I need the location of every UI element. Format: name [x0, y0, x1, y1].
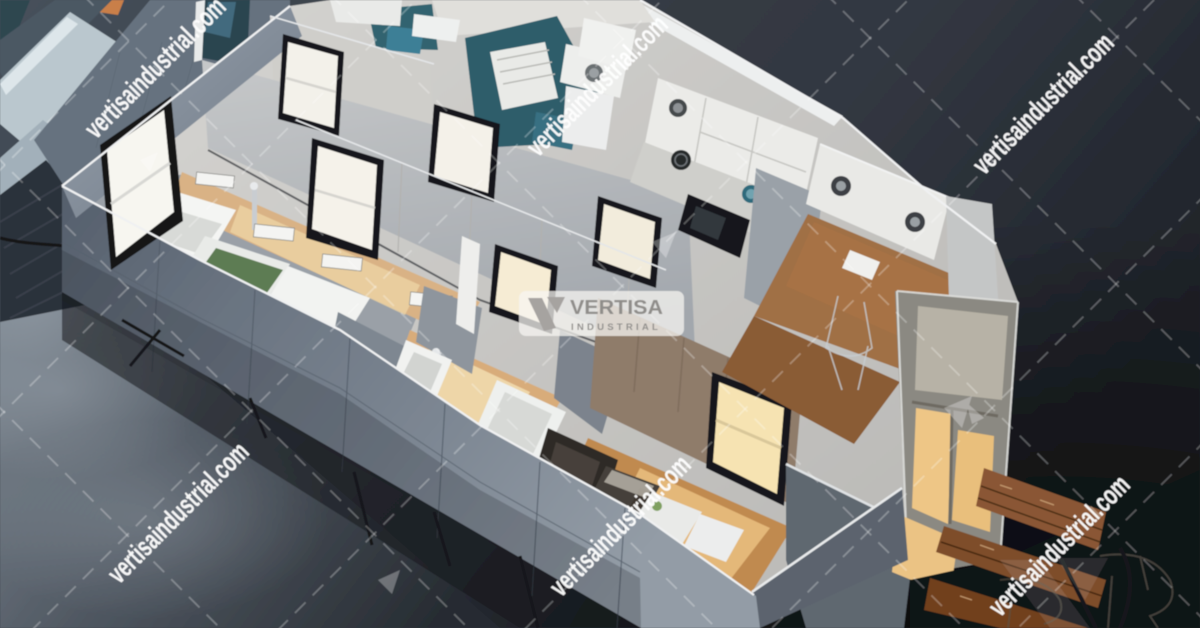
svg-text:VERTISA: VERTISA — [570, 297, 663, 319]
svg-text:INDUSTRIAL: INDUSTRIAL — [571, 322, 661, 332]
